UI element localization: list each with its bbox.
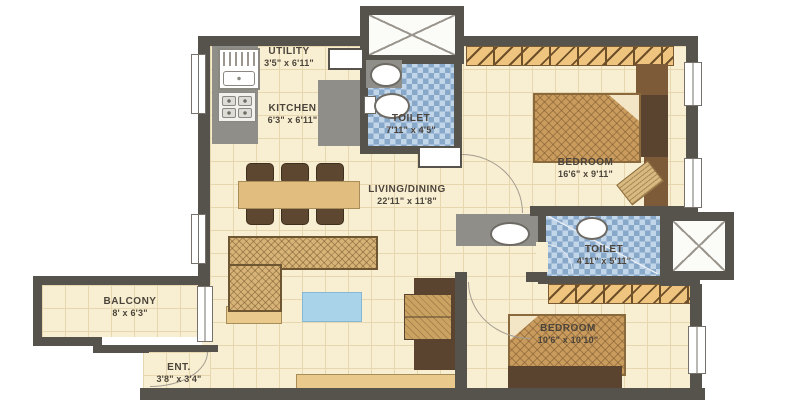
utility-dims: 3'5" x 6'11" (243, 58, 335, 69)
wall (455, 272, 467, 282)
dining-table (238, 181, 360, 209)
balcony-wall (33, 276, 205, 285)
wall (455, 282, 467, 388)
bed-sheet-fold (609, 95, 639, 121)
burner-icon (222, 108, 236, 118)
coffee-table (302, 292, 362, 322)
bedroom2-label: BEDROOM (512, 323, 624, 335)
sofa-left-section (228, 264, 282, 312)
toilet2-label: TOILET (548, 244, 660, 256)
elevator-shaft-2 (664, 212, 734, 280)
room-label-bedroom2: BEDROOM 10'6" x 10'10" (512, 323, 624, 346)
room-label-toilet2: TOILET 4'11" x 5'11" (548, 244, 660, 267)
room-label-balcony: BALCONY 8' x 6'3" (78, 296, 182, 319)
sink-basin (223, 71, 255, 86)
floor-plan: UTILITY 3'5" x 6'11" KITCHEN 6'3" x 6'11… (0, 0, 800, 415)
utility-label: UTILITY (243, 46, 335, 58)
balcony-label: BALCONY (78, 296, 182, 308)
bedroom1-label: BEDROOM (528, 157, 643, 169)
wall (530, 206, 688, 216)
toilet1-label: TOILET (365, 113, 457, 125)
kitchen-label: KITCHEN (240, 103, 345, 115)
burner-icon (222, 96, 236, 106)
toilet2-dims: 4'11" x 5'11" (548, 256, 660, 267)
room-label-utility: UTILITY 3'5" x 6'11" (243, 46, 335, 69)
tv (404, 294, 452, 340)
toilet1-door (418, 146, 462, 168)
room-label-kitchen: KITCHEN 6'3" x 6'11" (240, 103, 345, 126)
toilet2-sink (576, 217, 608, 240)
bedroom2-wardrobe (548, 284, 692, 304)
wall (93, 345, 149, 353)
balcony-dims: 8' x 6'3" (78, 308, 182, 319)
room-label-living: LIVING/DINING 22'11" x 11'8" (348, 184, 466, 207)
balcony-door (197, 286, 213, 342)
room-label-toilet1: TOILET 7'11" x 4'5" (365, 113, 457, 136)
window (191, 54, 206, 114)
entry-label: ENT. (140, 362, 218, 374)
window (684, 158, 702, 208)
window (684, 62, 702, 106)
kitchen-dims: 6'3" x 6'11" (240, 115, 345, 126)
toilet1-dims: 7'11" x 4'5" (365, 125, 457, 136)
living-dims: 22'11" x 11'8" (348, 196, 466, 207)
living-label: LIVING/DINING (348, 184, 466, 196)
toilet1-sink (370, 63, 402, 87)
bedroom1-bed (533, 93, 641, 163)
bedroom1-wardrobe (466, 46, 674, 66)
entry-wall (143, 345, 218, 352)
wall (140, 388, 705, 400)
room-label-entry: ENT. 3'8" x 3'4" (140, 362, 218, 385)
entry-dims: 3'8" x 3'4" (140, 374, 218, 385)
bedroom2-dims: 10'6" x 10'10" (512, 335, 624, 346)
elevator-shaft-1 (360, 6, 464, 64)
bedroom2-footboard (508, 366, 622, 388)
wall (455, 36, 695, 46)
balcony-wall (33, 276, 42, 346)
wall (198, 36, 368, 46)
balcony-wall (33, 337, 101, 346)
bedroom1-dims: 16'6" x 9'11" (528, 169, 643, 180)
window (191, 214, 206, 264)
window (688, 326, 706, 374)
washbasin (490, 222, 530, 246)
wall (526, 272, 547, 282)
room-label-bedroom1: BEDROOM 16'6" x 9'11" (528, 157, 643, 180)
